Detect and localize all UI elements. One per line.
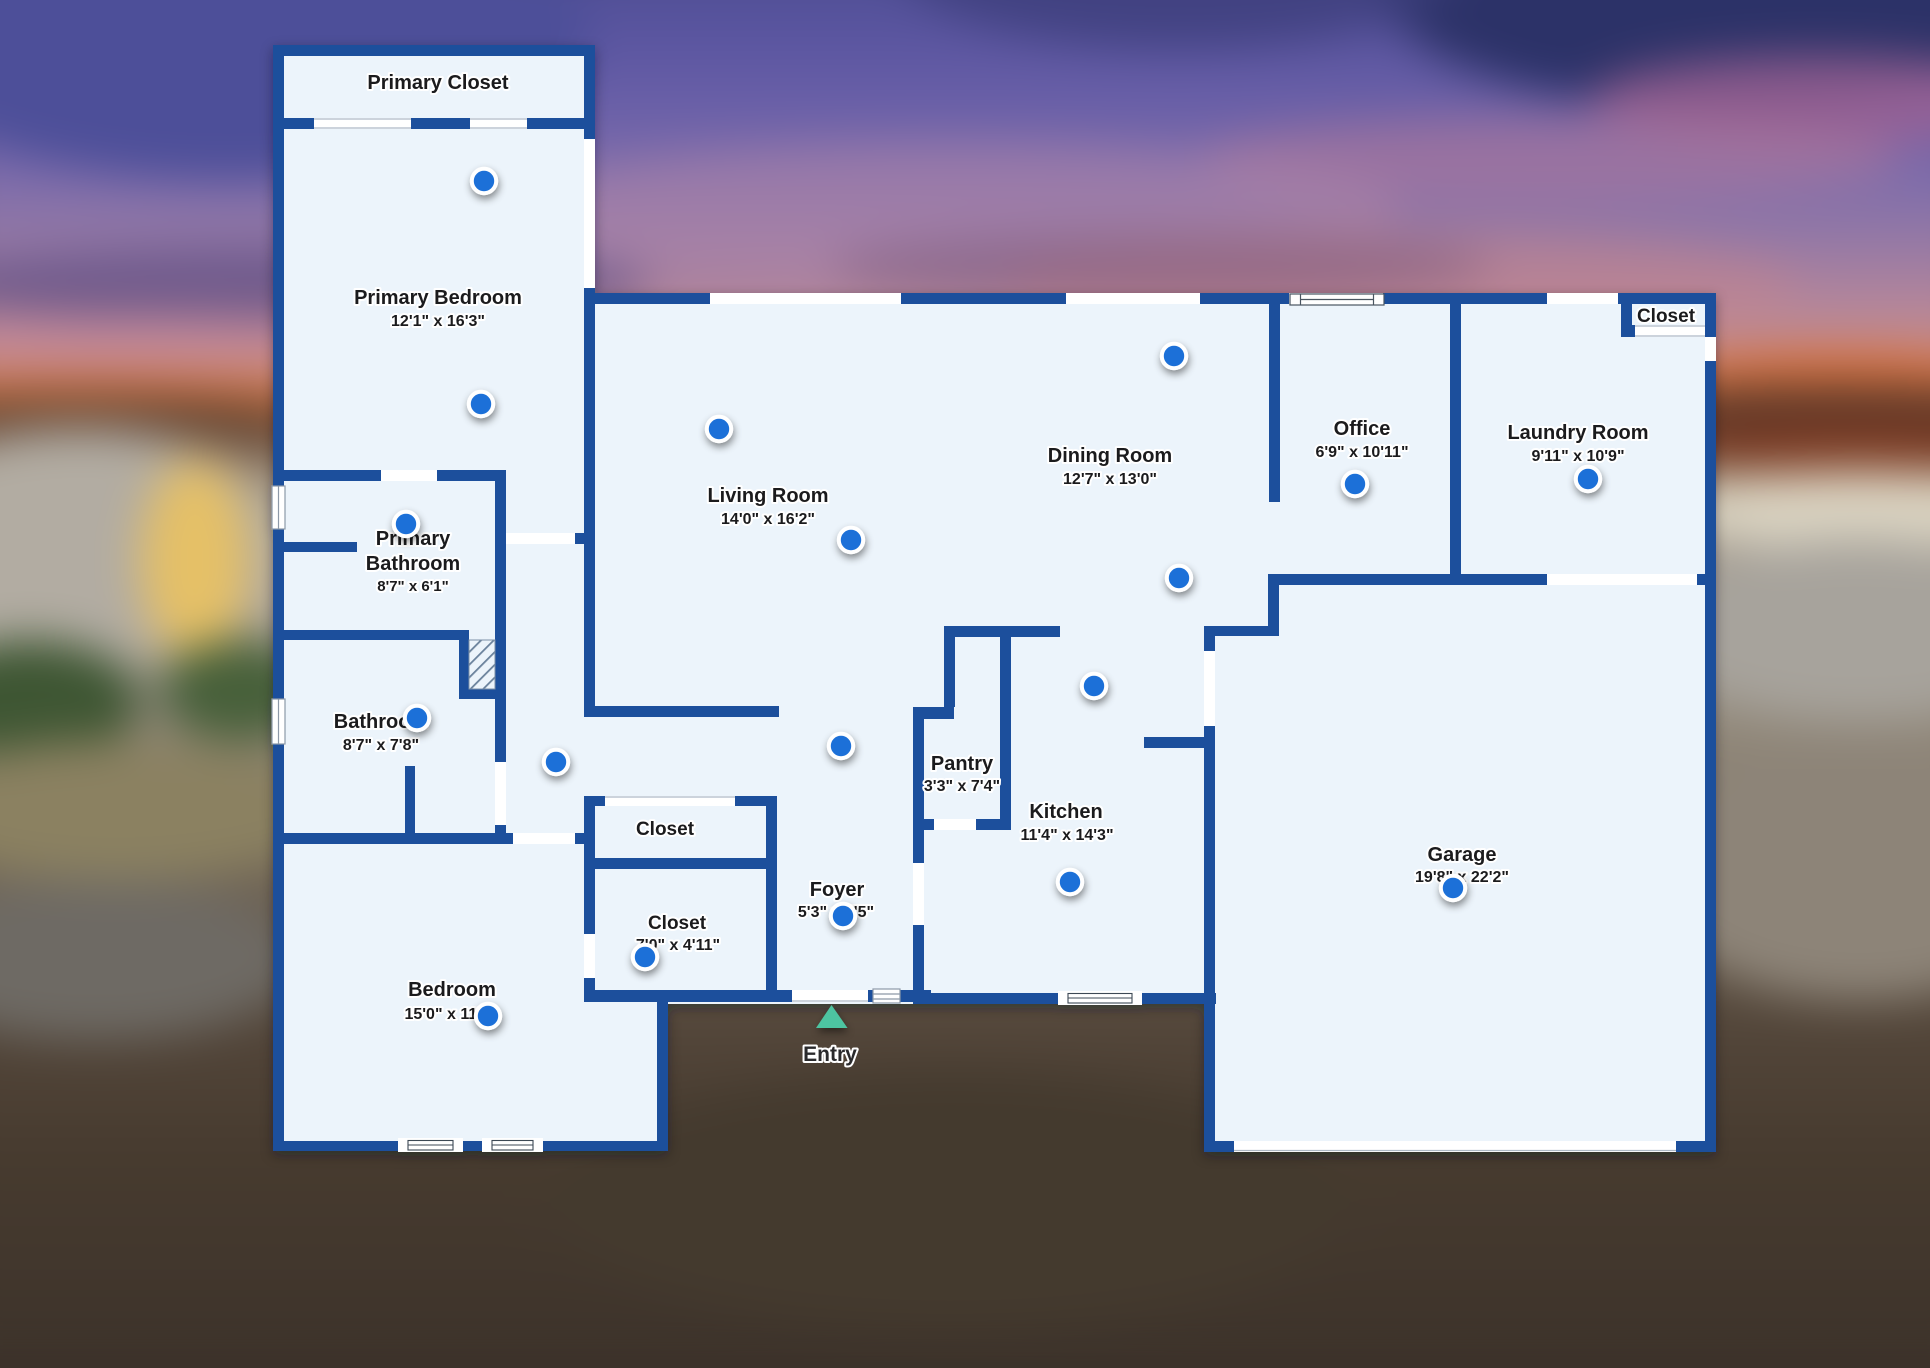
svg-text:Kitchen: Kitchen [1029,801,1102,823]
svg-text:Dining Room: Dining Room [1048,445,1172,467]
svg-text:Pantry: Pantry [931,753,994,775]
svg-text:Closet: Closet [1637,306,1696,327]
svg-text:11'4" x 14'3": 11'4" x 14'3" [1020,827,1113,844]
svg-text:8'7" x 7'8": 8'7" x 7'8" [343,737,419,754]
svg-text:Primary Bedroom: Primary Bedroom [354,287,522,309]
svg-text:Office: Office [1334,418,1391,440]
svg-text:Primary Closet: Primary Closet [367,72,509,94]
svg-text:3'3" x 7'4": 3'3" x 7'4" [924,778,1000,795]
svg-text:Entry: Entry [803,1043,857,1066]
svg-text:Bathroom: Bathroom [366,553,460,575]
svg-text:Foyer: Foyer [810,879,865,901]
svg-text:Closet: Closet [648,913,707,934]
svg-text:12'7" x 13'0": 12'7" x 13'0" [1063,471,1157,488]
svg-text:12'1" x 16'3": 12'1" x 16'3" [391,313,485,330]
svg-text:Closet: Closet [636,819,695,840]
svg-text:6'9" x 10'11": 6'9" x 10'11" [1315,444,1408,461]
svg-text:Bedroom: Bedroom [408,979,496,1001]
svg-text:8'7" x 6'1": 8'7" x 6'1" [377,578,448,595]
svg-text:14'0" x 16'2": 14'0" x 16'2" [721,511,815,528]
svg-text:Living Room: Living Room [707,485,828,507]
svg-text:Garage: Garage [1428,844,1497,866]
svg-text:9'11" x 10'9": 9'11" x 10'9" [1531,448,1624,465]
svg-text:Laundry Room: Laundry Room [1507,422,1648,444]
